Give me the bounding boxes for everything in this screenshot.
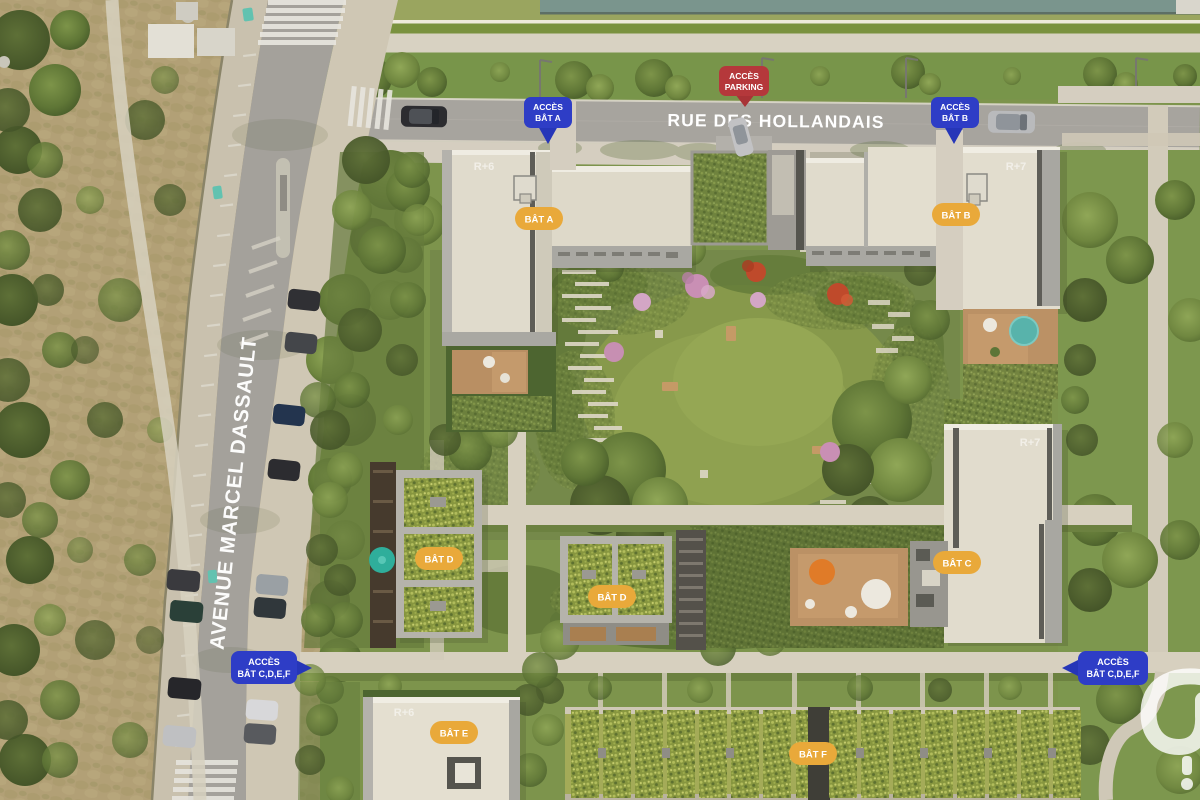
svg-text:R+6: R+6 [474,161,495,173]
svg-text:BÂT D: BÂT D [597,592,626,604]
svg-text:BÂT C,D,E,F: BÂT C,D,E,F [238,668,292,679]
svg-text:ACCÈS: ACCÈS [533,102,563,112]
svg-text:BÂT F: BÂT F [799,749,827,761]
svg-text:BÂT B: BÂT B [941,210,970,222]
svg-text:R+6: R+6 [394,707,415,719]
svg-text:BÂT C,D,E,F: BÂT C,D,E,F [1087,668,1141,679]
svg-text:ACCÈS: ACCÈS [940,102,970,112]
svg-text:BÂT C: BÂT C [942,558,971,570]
svg-text:R+7: R+7 [1006,161,1027,173]
svg-text:ACCÈS: ACCÈS [248,657,280,667]
svg-text:BÂT A: BÂT A [535,112,561,123]
svg-text:ACCÈS: ACCÈS [1097,657,1129,667]
svg-text:ACCÈS: ACCÈS [729,71,759,81]
svg-text:BÂT E: BÂT E [440,728,469,740]
svg-text:RUE DES HOLLANDAIS: RUE DES HOLLANDAIS [667,110,884,132]
svg-text:BÂT B: BÂT B [942,112,968,123]
svg-text:R+7: R+7 [1020,437,1041,449]
svg-text:BÂT D: BÂT D [424,554,453,566]
svg-text:BÂT A: BÂT A [525,214,554,226]
svg-text:PARKING: PARKING [725,82,764,92]
